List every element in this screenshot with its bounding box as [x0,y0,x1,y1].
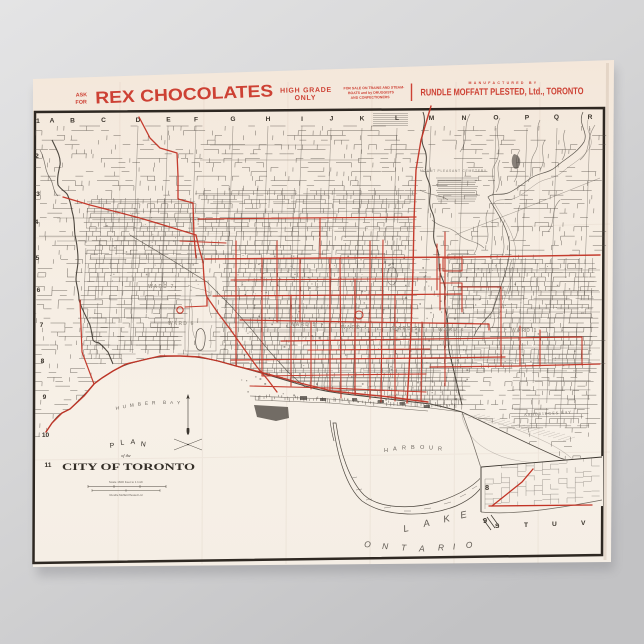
svg-text:L: L [395,115,399,122]
svg-text:M: M [429,115,435,122]
svg-text:V: V [581,520,586,527]
svg-text:O: O [465,540,473,550]
svg-text:8: 8 [485,483,489,492]
svg-text:8: 8 [41,358,45,365]
svg-text:WARD 1: WARD 1 [511,328,538,334]
svg-text:MOUNT PLEASANT CEMETERY: MOUNT PLEASANT CEMETERY [420,169,487,173]
svg-text:A: A [130,439,135,446]
svg-text:B: B [138,402,142,408]
svg-text:L: L [120,440,124,447]
svg-text:O: O [493,115,498,122]
svg-text:R: R [438,542,444,552]
svg-text:G: G [230,116,235,123]
svg-text:Scale 1600 Feet to 1 Inch: Scale 1600 Feet to 1 Inch [109,480,144,484]
svg-text:R: R [402,446,406,452]
svg-text:9: 9 [43,394,47,401]
svg-text:WARD 7: WARD 7 [148,284,175,290]
svg-text:C: C [101,117,106,124]
svg-text:WARD 2: WARD 2 [438,327,465,333]
svg-text:R: R [588,114,593,121]
svg-text:U: U [429,446,433,452]
svg-text:O: O [364,539,372,549]
svg-text:I: I [301,116,303,123]
svg-text:Q: Q [554,114,559,121]
svg-text:WARD 5: WARD 5 [290,322,317,328]
svg-text:E: E [145,401,149,407]
svg-text:H: H [384,448,388,454]
svg-text:U: U [552,521,557,528]
svg-text:T: T [524,522,528,529]
svg-text:R: R [438,447,442,453]
svg-text:P: P [525,114,530,121]
svg-text:MANUFACTURED BY: MANUFACTURED BY [469,81,539,85]
svg-text:ONLY: ONLY [295,95,317,102]
svg-text:3: 3 [36,191,40,198]
svg-text:WARD 4: WARD 4 [341,325,368,331]
svg-text:HIGH GRADE: HIGH GRADE [280,87,332,95]
svg-text:E: E [166,117,171,124]
svg-text:H: H [266,116,271,123]
svg-text:K: K [360,115,365,122]
svg-text:11: 11 [45,462,52,469]
svg-text:2: 2 [35,153,39,160]
svg-text:1: 1 [36,118,40,125]
svg-text:N: N [140,441,146,449]
svg-text:7: 7 [40,322,44,329]
svg-text:6: 6 [37,287,41,294]
svg-text:B: B [411,445,415,451]
svg-text:WARD 6: WARD 6 [168,321,195,327]
svg-text:9: 9 [483,516,487,525]
svg-text:A: A [418,544,425,554]
svg-text:ASK: ASK [76,92,88,98]
svg-text:AND CONFECTIONERS: AND CONFECTIONERS [351,95,391,100]
svg-text:A: A [393,447,397,453]
svg-text:CITY OF TORONTO: CITY OF TORONTO [62,462,195,472]
svg-text:RUNDLE MOFFATT PLESTED, Ltd.,: RUNDLE MOFFATT PLESTED, Ltd., TORONTO [420,86,583,98]
svg-text:Rundle Moffatt Plested Ltd: Rundle Moffatt Plested Ltd [110,493,143,497]
svg-text:of the: of the [121,453,131,458]
svg-text:N: N [462,115,467,122]
svg-text:S: S [495,523,500,530]
svg-text:A: A [50,118,55,125]
svg-text:B: B [163,400,166,406]
svg-text:FOR: FOR [75,99,87,105]
svg-text:WARD 3: WARD 3 [392,326,419,332]
svg-text:10: 10 [42,432,50,439]
svg-text:B: B [70,118,75,125]
svg-text:5: 5 [36,255,40,262]
svg-text:M: M [130,403,135,409]
svg-text:J: J [330,116,334,123]
svg-text:F: F [194,116,198,123]
svg-text:O: O [420,445,425,451]
